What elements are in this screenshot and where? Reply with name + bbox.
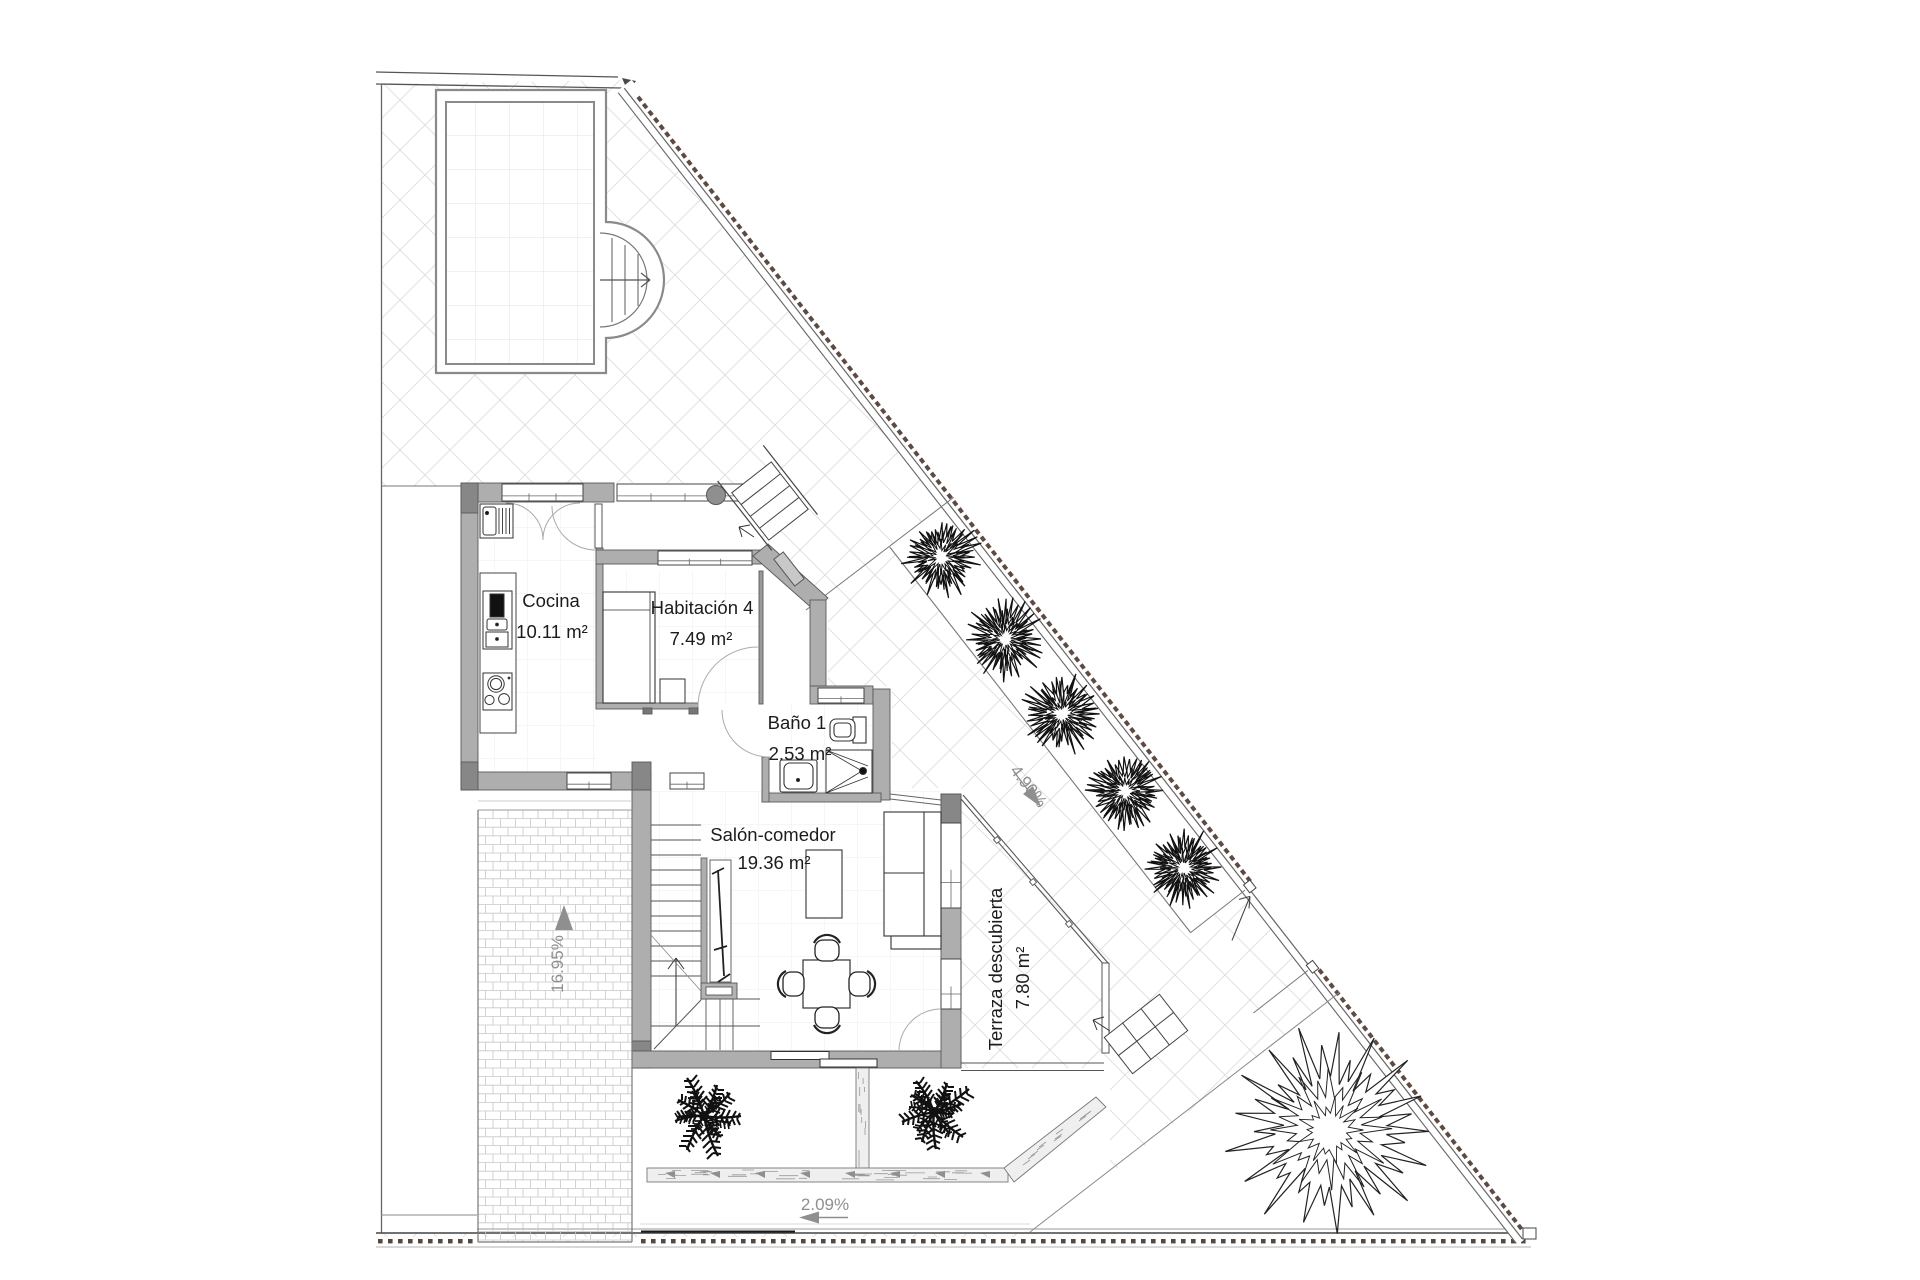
svg-text:19.36 m²: 19.36 m²	[737, 852, 810, 873]
svg-text:Baño 1: Baño 1	[768, 712, 827, 733]
svg-text:Terraza descubierta: Terraza descubierta	[985, 887, 1006, 1050]
svg-text:7.80 m²: 7.80 m²	[1012, 947, 1033, 1010]
svg-text:16.95%: 16.95%	[548, 935, 567, 993]
svg-text:Salón-comedor: Salón-comedor	[710, 824, 835, 845]
svg-text:Habitación 4: Habitación 4	[651, 597, 754, 618]
svg-text:2.53 m²: 2.53 m²	[769, 743, 832, 764]
svg-text:7.49 m²: 7.49 m²	[670, 628, 733, 649]
svg-text:Cocina: Cocina	[522, 590, 580, 611]
svg-text:10.11 m²: 10.11 m²	[516, 621, 588, 642]
svg-text:2.09%: 2.09%	[801, 1195, 849, 1214]
